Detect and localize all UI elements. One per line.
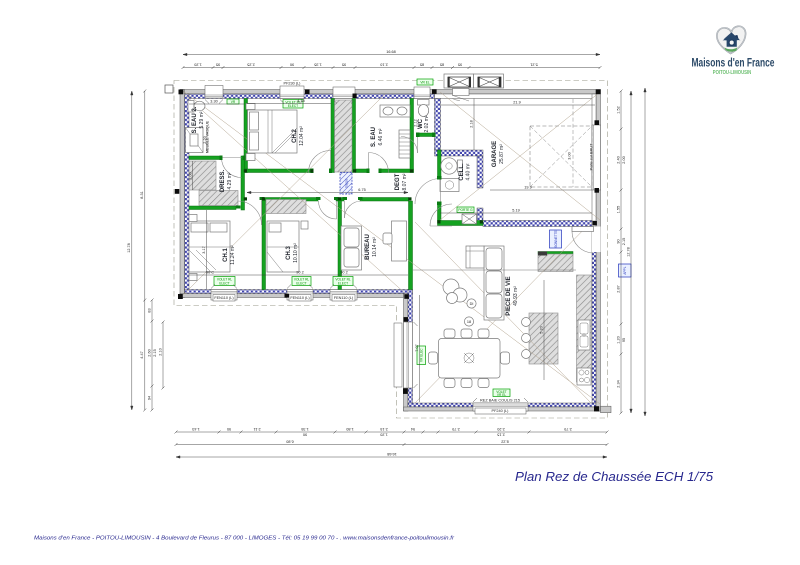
svg-text:6.46 m²: 6.46 m² xyxy=(378,128,384,145)
svg-text:S. EAU: S. EAU xyxy=(371,127,377,147)
svg-text:16.68: 16.68 xyxy=(387,452,397,456)
svg-text:83: 83 xyxy=(147,308,151,312)
svg-text:90 2: 90 2 xyxy=(296,271,303,275)
svg-text:21.9: 21.9 xyxy=(513,101,520,105)
svg-text:6.75: 6.75 xyxy=(358,188,365,192)
svg-text:12.78: 12.78 xyxy=(626,247,630,257)
svg-text:5 20: 5 20 xyxy=(540,326,544,333)
svg-text:2.79: 2.79 xyxy=(564,427,571,431)
svg-text:90: 90 xyxy=(290,62,294,66)
svg-text:1.20: 1.20 xyxy=(194,62,201,66)
svg-text:BUREAU: BUREAU xyxy=(365,234,371,260)
svg-text:95: 95 xyxy=(216,62,220,66)
svg-text:Plan Rez de Chaussée ECH 1/75: Plan Rez de Chaussée ECH 1/75 xyxy=(515,469,714,484)
svg-text:2.12: 2.12 xyxy=(414,119,418,126)
svg-text:95: 95 xyxy=(622,338,626,342)
svg-text:49.93 m²: 49.93 m² xyxy=(513,286,519,306)
svg-text:2.18: 2.18 xyxy=(470,120,474,127)
svg-text:1.43: 1.43 xyxy=(192,427,199,431)
svg-text:1.35: 1.35 xyxy=(314,62,321,66)
svg-text:95: 95 xyxy=(342,62,346,66)
svg-text:5.29 m²: 5.29 m² xyxy=(199,111,205,128)
svg-text:1.80: 1.80 xyxy=(346,427,353,431)
svg-text:FEN110 (L): FEN110 (L) xyxy=(214,296,234,300)
svg-text:10.14 m²: 10.14 m² xyxy=(372,237,378,257)
svg-text:FEN110 (L): FEN110 (L) xyxy=(334,296,354,300)
svg-text:3.17: 3.17 xyxy=(202,246,206,253)
svg-text:2.15: 2.15 xyxy=(622,238,626,245)
svg-text:CH.2: CH.2 xyxy=(292,129,298,143)
svg-text:CH.1: CH.1 xyxy=(223,248,229,262)
svg-text:FEN110 (L): FEN110 (L) xyxy=(290,296,310,300)
svg-text:3.30: 3.30 xyxy=(210,100,217,104)
svg-text:2.00: 2.00 xyxy=(622,156,626,163)
svg-text:8.22: 8.22 xyxy=(501,439,508,443)
svg-text:2.34: 2.34 xyxy=(616,380,620,387)
svg-text:2.15: 2.15 xyxy=(380,427,387,431)
svg-text:6.80: 6.80 xyxy=(286,439,293,443)
svg-text:ELECT: ELECT xyxy=(288,104,298,108)
svg-text:trappe: trappe xyxy=(345,178,349,187)
svg-text:90: 90 xyxy=(303,432,307,436)
svg-text:Porte sur BRUT: Porte sur BRUT xyxy=(590,143,594,170)
svg-text:4.29 m²: 4.29 m² xyxy=(227,172,233,189)
svg-text:POITOU-LIMOUSIN: POITOU-LIMOUSIN xyxy=(713,70,752,76)
svg-text:25.87 m²: 25.87 m² xyxy=(499,144,505,164)
svg-text:12.78: 12.78 xyxy=(127,243,131,253)
svg-text:2.15: 2.15 xyxy=(153,349,157,356)
svg-text:Maisons d'en France - POITOU-L: Maisons d'en France - POITOU-LIMOUSIN - … xyxy=(34,536,454,542)
svg-text:16.68: 16.68 xyxy=(386,50,396,54)
svg-text:2.79: 2.79 xyxy=(452,427,459,431)
svg-text:18: 18 xyxy=(467,320,471,324)
svg-text:2.15: 2.15 xyxy=(497,432,504,436)
svg-text:PORTE G: PORTE G xyxy=(458,208,473,212)
svg-text:90: 90 xyxy=(227,427,231,431)
svg-text:1.20: 1.20 xyxy=(380,432,387,436)
svg-text:2.00: 2.00 xyxy=(188,172,192,179)
svg-text:DI: DI xyxy=(470,302,474,306)
svg-text:19.9: 19.9 xyxy=(524,186,531,190)
svg-text:S. EAU 2.: S. EAU 2. xyxy=(192,106,198,133)
svg-text:1.20: 1.20 xyxy=(616,336,620,343)
svg-text:VR ELEC: VR ELEC xyxy=(420,348,424,362)
svg-text:VR EL: VR EL xyxy=(420,80,429,84)
svg-text:2.20: 2.20 xyxy=(497,427,504,431)
svg-text:PF240 (L): PF240 (L) xyxy=(492,409,510,413)
svg-text:3.00: 3.00 xyxy=(568,152,572,159)
svg-text:8.31: 8.31 xyxy=(140,191,144,198)
svg-text:DRESS.: DRESS. xyxy=(220,170,226,193)
svg-text:Maisons d'en France: Maisons d'en France xyxy=(692,58,775,70)
svg-text:SONNETTE: SONNETTE xyxy=(554,230,558,247)
svg-text:94: 94 xyxy=(147,396,151,400)
svg-text:4.15: 4.15 xyxy=(297,99,304,103)
svg-text:VR EL: VR EL xyxy=(497,393,506,397)
svg-text:85: 85 xyxy=(420,62,424,66)
svg-text:1.35: 1.35 xyxy=(301,427,308,431)
svg-text:11.24 m²: 11.24 m² xyxy=(230,245,236,265)
svg-text:1.52: 1.52 xyxy=(616,106,620,113)
svg-text:DEGT: DEGT xyxy=(395,173,401,190)
svg-text:CH.3: CH.3 xyxy=(286,246,292,260)
svg-text:ELECT: ELECT xyxy=(219,281,229,285)
svg-text:2.10: 2.10 xyxy=(380,62,387,66)
svg-text:2.60: 2.60 xyxy=(147,349,151,356)
svg-text:GARAGE: GARAGE xyxy=(492,141,498,167)
svg-text:5.21: 5.21 xyxy=(530,62,537,66)
svg-text:8.07 m²: 8.07 m² xyxy=(402,173,408,190)
svg-text:7.07: 7.07 xyxy=(415,344,419,351)
svg-text:95: 95 xyxy=(458,62,462,66)
svg-text:4.40 m²: 4.40 m² xyxy=(466,163,472,180)
svg-text:85: 85 xyxy=(440,62,444,66)
svg-text:2.10: 2.10 xyxy=(158,348,162,355)
svg-text:2.11: 2.11 xyxy=(253,427,260,431)
svg-text:94: 94 xyxy=(411,427,415,431)
svg-text:2.20: 2.20 xyxy=(203,136,207,143)
svg-text:PIECE DE VIE: PIECE DE VIE xyxy=(506,276,512,315)
svg-text:1.55: 1.55 xyxy=(616,206,620,213)
svg-text:2.40: 2.40 xyxy=(616,156,620,163)
svg-text:4.47: 4.47 xyxy=(140,351,144,358)
svg-text:90 2: 90 2 xyxy=(340,271,347,275)
svg-text:REZ BAIE COULIS 215: REZ BAIE COULIS 215 xyxy=(480,399,520,403)
svg-text:90: 90 xyxy=(616,239,620,243)
svg-text:APPL: APPL xyxy=(623,266,627,274)
svg-text:2.25: 2.25 xyxy=(247,62,254,66)
svg-text:ELECT: ELECT xyxy=(338,281,348,285)
svg-text:12.04 m²: 12.04 m² xyxy=(299,126,305,146)
svg-text:5.19: 5.19 xyxy=(512,209,519,213)
svg-text:ELECT: ELECT xyxy=(296,281,306,285)
svg-text:PF230 (L): PF230 (L) xyxy=(284,82,302,86)
svg-text:2.87: 2.87 xyxy=(616,285,620,292)
svg-text:90 C: 90 C xyxy=(206,271,214,275)
svg-text:CELL.: CELL. xyxy=(459,163,465,181)
svg-text:10.10 m²: 10.10 m² xyxy=(293,243,299,263)
svg-text:VR: VR xyxy=(231,100,236,104)
svg-text:2.02 m²: 2.02 m² xyxy=(424,115,430,132)
